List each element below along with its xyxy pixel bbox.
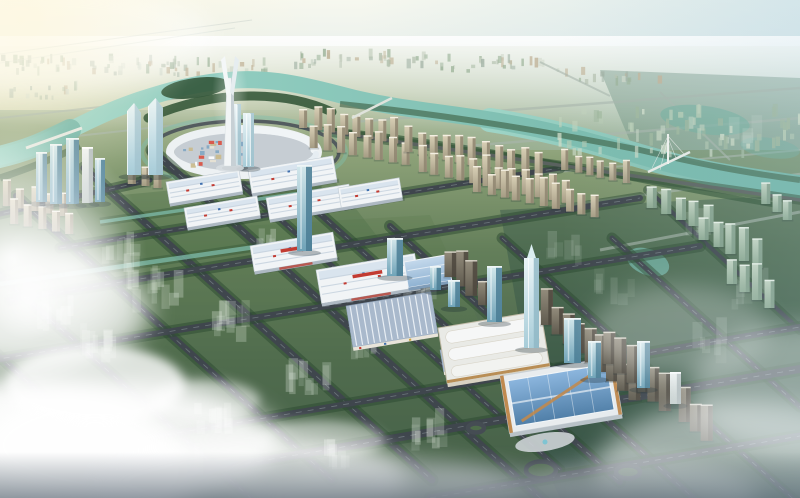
- right-cool-grade: [560, 0, 800, 498]
- distant-building: [471, 65, 475, 68]
- ghost-building: [236, 326, 247, 342]
- tower-shade: [478, 166, 481, 192]
- distant-building: [407, 59, 411, 69]
- distant-building: [317, 55, 321, 61]
- plaza-pavilion: [200, 151, 205, 155]
- tower-roof: [349, 132, 357, 133]
- tower-shade: [437, 266, 441, 290]
- tower-roof: [526, 178, 534, 179]
- tower-cap: [387, 238, 403, 240]
- distant-building: [323, 49, 326, 57]
- distant-building: [308, 64, 311, 68]
- plaza-pavilion: [216, 141, 219, 143]
- distant-building: [340, 54, 343, 61]
- blue-accent: [200, 183, 203, 185]
- distant-building: [416, 56, 419, 60]
- tower-cap: [297, 165, 312, 167]
- distant-building: [299, 63, 303, 69]
- distant-building: [294, 62, 297, 69]
- tower-shade: [461, 155, 464, 180]
- storefront-accent: [409, 339, 411, 341]
- distant-building: [521, 59, 524, 67]
- tower-roof: [310, 126, 318, 127]
- plaza-pavilion: [189, 148, 193, 151]
- blue-accent: [287, 170, 290, 172]
- tower-roof: [541, 288, 553, 289]
- tower-roof: [508, 168, 516, 169]
- tower-roof: [507, 149, 515, 150]
- distant-building: [208, 57, 210, 66]
- plaza-pavilion: [199, 162, 203, 166]
- tower-roof: [495, 145, 503, 146]
- plaza-pavilion: [210, 160, 216, 162]
- tower-roof: [495, 167, 503, 168]
- tower-shade: [354, 132, 357, 155]
- ghost-building: [286, 365, 294, 392]
- tower-shade: [493, 174, 496, 195]
- tower-sheen: [490, 268, 492, 320]
- tower-roof: [390, 117, 398, 118]
- tower-roof: [430, 135, 438, 136]
- tower-roof: [419, 145, 427, 146]
- tower-shade: [250, 113, 254, 167]
- tower-roof: [540, 177, 548, 178]
- scene-canvas: Aerial master-plan rendering of a planne…: [0, 0, 800, 498]
- tower-roof: [552, 183, 560, 184]
- tower-roof: [473, 166, 481, 167]
- ghost-building: [214, 324, 221, 336]
- tower-roof: [324, 124, 332, 125]
- plaza-pavilion: [216, 155, 222, 160]
- tower-shade: [557, 183, 560, 209]
- tower-roof: [521, 147, 529, 148]
- tower-roof: [443, 135, 451, 136]
- ghost-building: [435, 408, 444, 435]
- distant-building: [263, 57, 266, 65]
- distant-building: [302, 58, 305, 63]
- tower-shade: [319, 106, 322, 130]
- tower-roof: [456, 155, 464, 156]
- distant-building: [530, 56, 533, 65]
- tower-shade: [500, 145, 503, 170]
- tower-roof: [378, 119, 386, 120]
- fountain: [543, 440, 548, 445]
- tower-roof: [418, 133, 426, 134]
- ghost-building: [174, 270, 184, 298]
- distant-building: [369, 49, 373, 59]
- tower-shade: [409, 126, 412, 153]
- tower-shade: [534, 258, 539, 348]
- distant-building: [301, 53, 304, 58]
- tower-roof: [535, 152, 543, 153]
- distant-building: [412, 57, 415, 64]
- tower-shade: [394, 137, 397, 163]
- tower-roof: [455, 135, 463, 136]
- distant-building: [212, 63, 215, 72]
- tower-roof: [501, 170, 509, 171]
- tower-shade: [342, 126, 345, 153]
- distant-building: [379, 53, 382, 61]
- tower-roof: [340, 114, 348, 115]
- tower-roof: [469, 158, 477, 159]
- distant-building: [420, 61, 423, 68]
- distant-building: [347, 57, 351, 61]
- tower-cap: [430, 266, 441, 268]
- ghost-building: [432, 437, 440, 448]
- tower-roof: [482, 141, 490, 142]
- storefront-accent: [384, 343, 386, 345]
- tower-shade: [435, 153, 438, 175]
- blue-accent: [367, 189, 370, 191]
- ghost-building: [548, 231, 557, 258]
- tower-roof: [430, 153, 438, 154]
- tower-roof: [522, 169, 530, 170]
- tower-sheen: [432, 268, 434, 288]
- distant-building: [466, 69, 470, 73]
- tower-roof: [363, 135, 371, 136]
- distant-building: [388, 59, 390, 67]
- tower-shade: [424, 145, 427, 172]
- tower-roof: [365, 118, 373, 119]
- tower-cap: [448, 280, 460, 282]
- tower-roof: [468, 137, 476, 138]
- distant-building: [327, 50, 330, 59]
- tower-roof: [549, 174, 557, 175]
- distant-building: [492, 61, 496, 64]
- aerial-city-rendering: Aerial master-plan rendering of a planne…: [0, 0, 800, 498]
- distant-building: [440, 63, 443, 71]
- tower-roof: [465, 260, 477, 261]
- tower-shade: [496, 266, 502, 322]
- plaza-pavilion: [201, 147, 203, 149]
- distant-building: [481, 59, 484, 67]
- distant-building: [339, 61, 342, 68]
- tower-roof: [389, 137, 397, 138]
- ghost-building: [227, 317, 235, 333]
- tower-shade: [452, 251, 457, 277]
- tower-shade: [455, 280, 460, 307]
- distant-building: [508, 54, 510, 63]
- tower-roof: [445, 156, 453, 157]
- distant-building: [387, 49, 390, 57]
- distant-building: [435, 61, 438, 65]
- tower-shade: [357, 115, 360, 137]
- tower-shade: [304, 109, 307, 128]
- tower-shade: [369, 135, 372, 157]
- ghost-building: [242, 300, 250, 327]
- storefront-accent: [359, 347, 361, 349]
- tower-cap: [487, 266, 502, 268]
- ghost-building: [148, 280, 156, 294]
- plaza-pavilion: [209, 156, 215, 159]
- tower-shade: [545, 177, 548, 206]
- plaza-pavilion: [207, 145, 210, 148]
- tower-sheen: [451, 282, 453, 305]
- distant-building: [448, 54, 451, 62]
- tower-shade: [517, 176, 520, 201]
- distant-building: [383, 51, 386, 59]
- tower-shade: [397, 238, 403, 276]
- ghost-building: [162, 285, 170, 309]
- plaza-pavilion: [183, 149, 186, 151]
- distant-building: [311, 59, 314, 65]
- distant-building: [535, 58, 539, 68]
- ghost-building: [412, 417, 420, 442]
- tower-roof: [535, 173, 543, 174]
- tower-roof: [488, 174, 496, 175]
- tower-shade: [506, 170, 509, 198]
- distant-building: [422, 52, 426, 61]
- distant-building: [503, 65, 506, 69]
- cloud: [150, 380, 260, 420]
- plaza-pavilion: [209, 141, 214, 144]
- tower-roof: [299, 109, 307, 110]
- tower-shade: [329, 124, 332, 150]
- ghost-building: [322, 362, 331, 385]
- distant-building: [498, 56, 502, 63]
- distant-building: [197, 57, 199, 65]
- tower-roof: [314, 106, 322, 107]
- tower-shade: [332, 108, 335, 132]
- distant-building: [512, 66, 516, 70]
- ghost-building: [305, 378, 314, 395]
- tower-shade: [306, 165, 312, 251]
- tower-roof: [482, 154, 490, 155]
- tower-shade: [473, 260, 478, 296]
- plaza-pavilion: [195, 162, 197, 166]
- distant-building: [252, 59, 255, 67]
- distant-building: [451, 66, 454, 72]
- tower-roof: [404, 126, 412, 127]
- plaza-pavilion: [218, 141, 222, 145]
- blue-accent: [218, 208, 221, 210]
- plaza-pavilion: [191, 163, 196, 167]
- tower-shade: [345, 114, 348, 135]
- tower-roof: [456, 250, 468, 251]
- ghost-building: [299, 361, 308, 378]
- tower-shade: [383, 119, 386, 141]
- roundabout: [468, 424, 484, 433]
- tower-shade: [531, 178, 534, 203]
- tower-roof: [337, 126, 345, 127]
- distant-building: [355, 57, 359, 60]
- tower-shade: [380, 131, 383, 160]
- tower-roof: [375, 131, 383, 132]
- tower-sheen: [300, 167, 302, 249]
- plaza-pavilion: [215, 150, 219, 153]
- distant-building: [314, 59, 316, 64]
- tower-roof: [327, 108, 335, 109]
- tower-shade: [450, 156, 453, 178]
- tower-sheen: [391, 240, 393, 274]
- plaza-pavilion: [209, 146, 214, 149]
- tower-roof: [512, 176, 520, 177]
- tower-shade: [315, 126, 318, 149]
- tower-roof: [444, 251, 456, 252]
- plaza-pavilion: [199, 156, 204, 159]
